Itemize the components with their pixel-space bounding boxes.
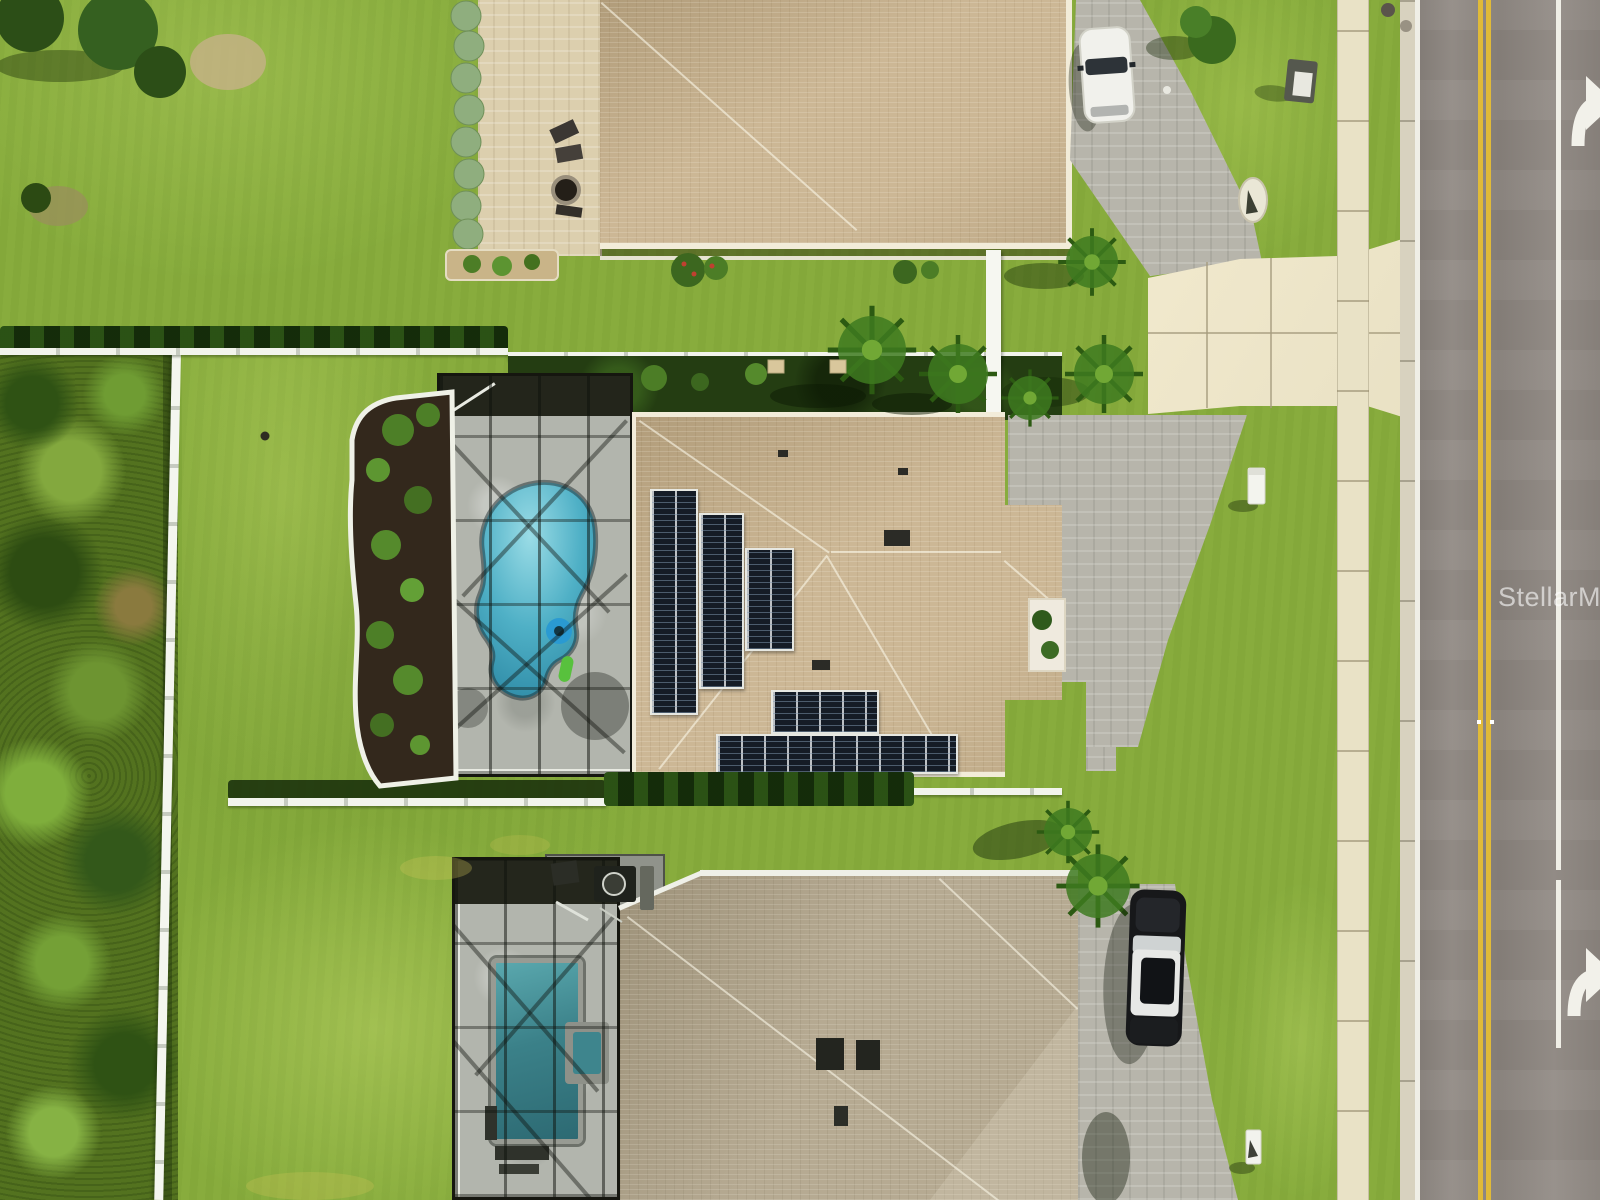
mulch-bed (350, 392, 456, 786)
turn-arrow-marking-bottom (1574, 948, 1600, 1016)
rear-garden-plants (641, 306, 1059, 427)
drain-marker (1239, 178, 1267, 222)
mailbox (1229, 1130, 1261, 1174)
courtyard-plants (1032, 610, 1059, 659)
manhole-cover (1381, 3, 1395, 17)
lounge-chair (549, 119, 579, 144)
sunroof (1140, 957, 1176, 1004)
manhole-cover (1400, 20, 1412, 32)
bush (1146, 6, 1236, 64)
lounge-chair (555, 144, 583, 163)
lawn-debris (261, 432, 270, 441)
pool-equipment (551, 860, 654, 922)
planter-box (446, 250, 558, 280)
bench-object (1254, 56, 1318, 106)
tree-canopy-cluster (0, 0, 266, 226)
white-car (1065, 26, 1140, 132)
patio-furniture (549, 119, 583, 218)
suv (1101, 888, 1187, 1066)
planter-pot (768, 360, 784, 373)
planter-pot (830, 360, 846, 373)
sprinkler-cap (1163, 86, 1171, 94)
flower-bushes (671, 253, 939, 287)
dry-grass-patches (246, 835, 550, 1200)
watermark: StellarMLS (1498, 582, 1600, 613)
scene-objects (0, 0, 1600, 1200)
mailbox (1228, 468, 1265, 512)
turn-arrow-marking-top (1578, 76, 1600, 146)
shrub-row (451, 1, 484, 249)
fire-pit (553, 177, 579, 203)
bench (555, 204, 582, 218)
aerial-photo: StellarMLS (0, 0, 1600, 1200)
windshield (1085, 57, 1128, 76)
dirt-patch (190, 34, 266, 90)
